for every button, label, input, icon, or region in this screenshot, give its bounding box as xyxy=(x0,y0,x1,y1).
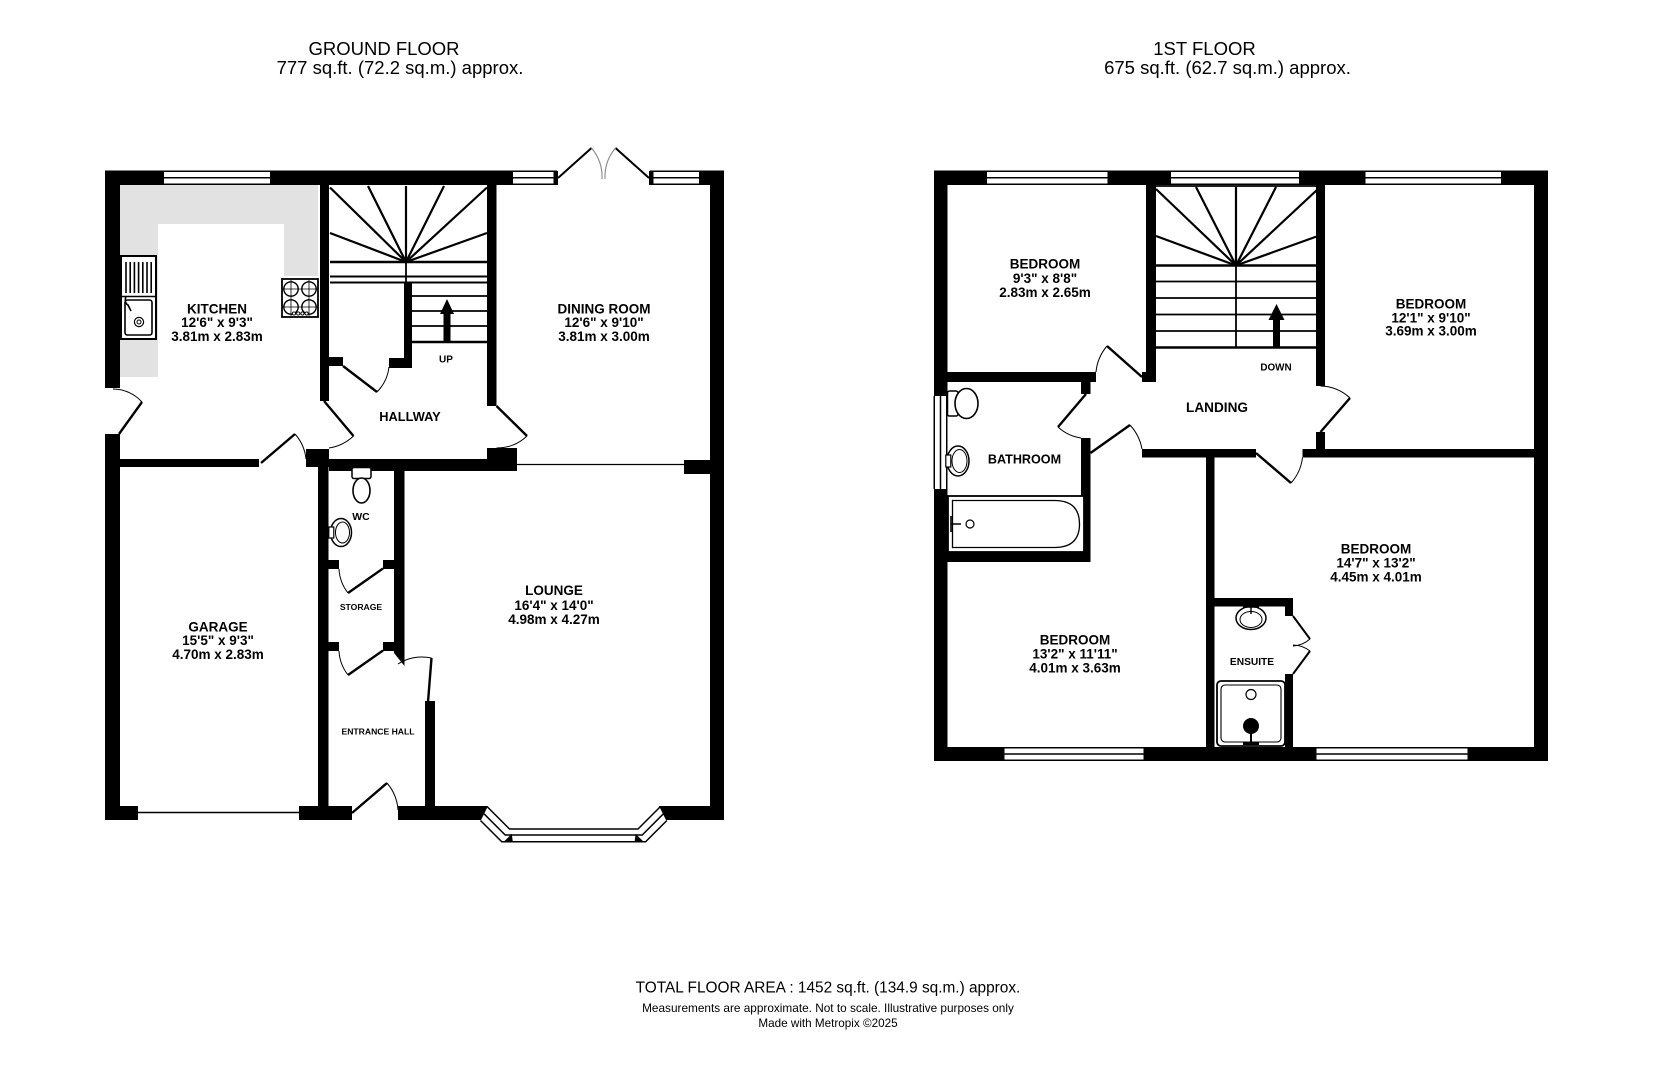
svg-text:GARAGE: GARAGE xyxy=(188,619,247,634)
svg-text:4.45m x 4.01m: 4.45m x 4.01m xyxy=(1330,570,1422,585)
svg-text:3.81m x 3.00m: 3.81m x 3.00m xyxy=(558,329,650,344)
svg-text:UP: UP xyxy=(439,355,453,366)
svg-text:BEDROOM: BEDROOM xyxy=(1040,632,1111,647)
svg-text:1ST FLOOR: 1ST FLOOR xyxy=(1153,38,1255,59)
svg-text:BEDROOM: BEDROOM xyxy=(1010,256,1081,271)
svg-text:16'4" x 14'0": 16'4" x 14'0" xyxy=(514,598,593,613)
svg-text:675 sq.ft. (62.7 sq.m.) approx: 675 sq.ft. (62.7 sq.m.) approx. xyxy=(1104,57,1351,78)
svg-text:9'3" x 8'8": 9'3" x 8'8" xyxy=(1013,271,1077,286)
svg-text:13'2" x 11'11": 13'2" x 11'11" xyxy=(1032,647,1117,662)
svg-text:2.83m x 2.65m: 2.83m x 2.65m xyxy=(999,285,1091,300)
svg-text:HALLWAY: HALLWAY xyxy=(379,409,441,424)
svg-text:WC: WC xyxy=(352,511,370,523)
svg-text:LANDING: LANDING xyxy=(1186,400,1248,415)
svg-text:3.81m x 2.83m: 3.81m x 2.83m xyxy=(171,329,263,344)
svg-text:BATHROOM: BATHROOM xyxy=(988,453,1061,467)
svg-text:777 sq.ft. (72.2 sq.m.) approx: 777 sq.ft. (72.2 sq.m.) approx. xyxy=(277,57,524,78)
svg-text:4.98m x 4.27m: 4.98m x 4.27m xyxy=(508,612,600,627)
svg-text:STORAGE: STORAGE xyxy=(340,602,383,612)
svg-text:4.01m x 3.63m: 4.01m x 3.63m xyxy=(1029,661,1121,676)
svg-text:15'5" x 9'3": 15'5" x 9'3" xyxy=(182,633,254,648)
svg-text:BEDROOM: BEDROOM xyxy=(1396,296,1467,311)
svg-text:LOUNGE: LOUNGE xyxy=(525,583,583,598)
svg-text:GROUND FLOOR: GROUND FLOOR xyxy=(308,38,459,59)
svg-text:Made with Metropix ©2025: Made with Metropix ©2025 xyxy=(758,1017,898,1030)
svg-text:14'7" x 13'2": 14'7" x 13'2" xyxy=(1336,556,1415,571)
svg-text:ENTRANCE HALL: ENTRANCE HALL xyxy=(341,727,414,737)
svg-text:12'6" x 9'10": 12'6" x 9'10" xyxy=(564,315,643,330)
svg-text:12'6" x 9'3": 12'6" x 9'3" xyxy=(181,315,253,330)
svg-text:TOTAL FLOOR AREA : 1452 sq.ft.: TOTAL FLOOR AREA : 1452 sq.ft. (134.9 sq… xyxy=(636,980,1021,997)
svg-text:DOWN: DOWN xyxy=(1260,363,1291,374)
svg-text:3.69m x 3.00m: 3.69m x 3.00m xyxy=(1385,324,1477,339)
svg-text:BEDROOM: BEDROOM xyxy=(1341,542,1412,557)
svg-text:Measurements are approximate.: Measurements are approximate. Not to sca… xyxy=(642,1001,1014,1015)
svg-text:ENSUITE: ENSUITE xyxy=(1230,657,1274,668)
svg-text:4.70m x 2.83m: 4.70m x 2.83m xyxy=(172,647,264,662)
